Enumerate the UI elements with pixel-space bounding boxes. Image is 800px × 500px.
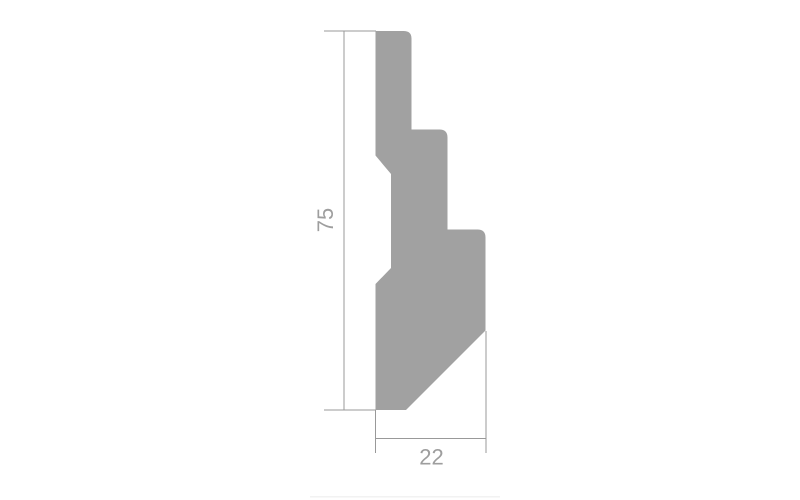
svg-text:22: 22 xyxy=(419,445,443,470)
svg-text:75: 75 xyxy=(313,208,338,232)
